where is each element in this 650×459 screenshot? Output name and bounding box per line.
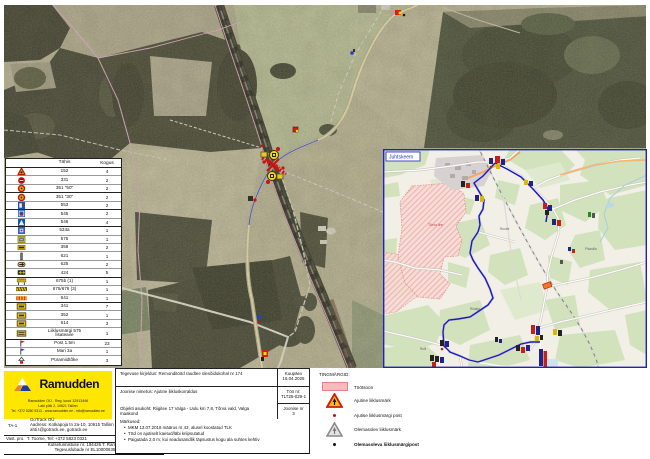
svg-text:Tõrva linn: Tõrva linn	[428, 223, 443, 227]
svg-text:Pikasilla: Pikasilla	[585, 247, 597, 251]
svg-text:Riidaja: Riidaja	[470, 307, 480, 311]
svg-text:Roobe: Roobe	[500, 227, 510, 231]
svg-text:Juhtskeem: Juhtskeem	[389, 155, 413, 161]
svg-text:Rulli: Rulli	[420, 347, 426, 351]
